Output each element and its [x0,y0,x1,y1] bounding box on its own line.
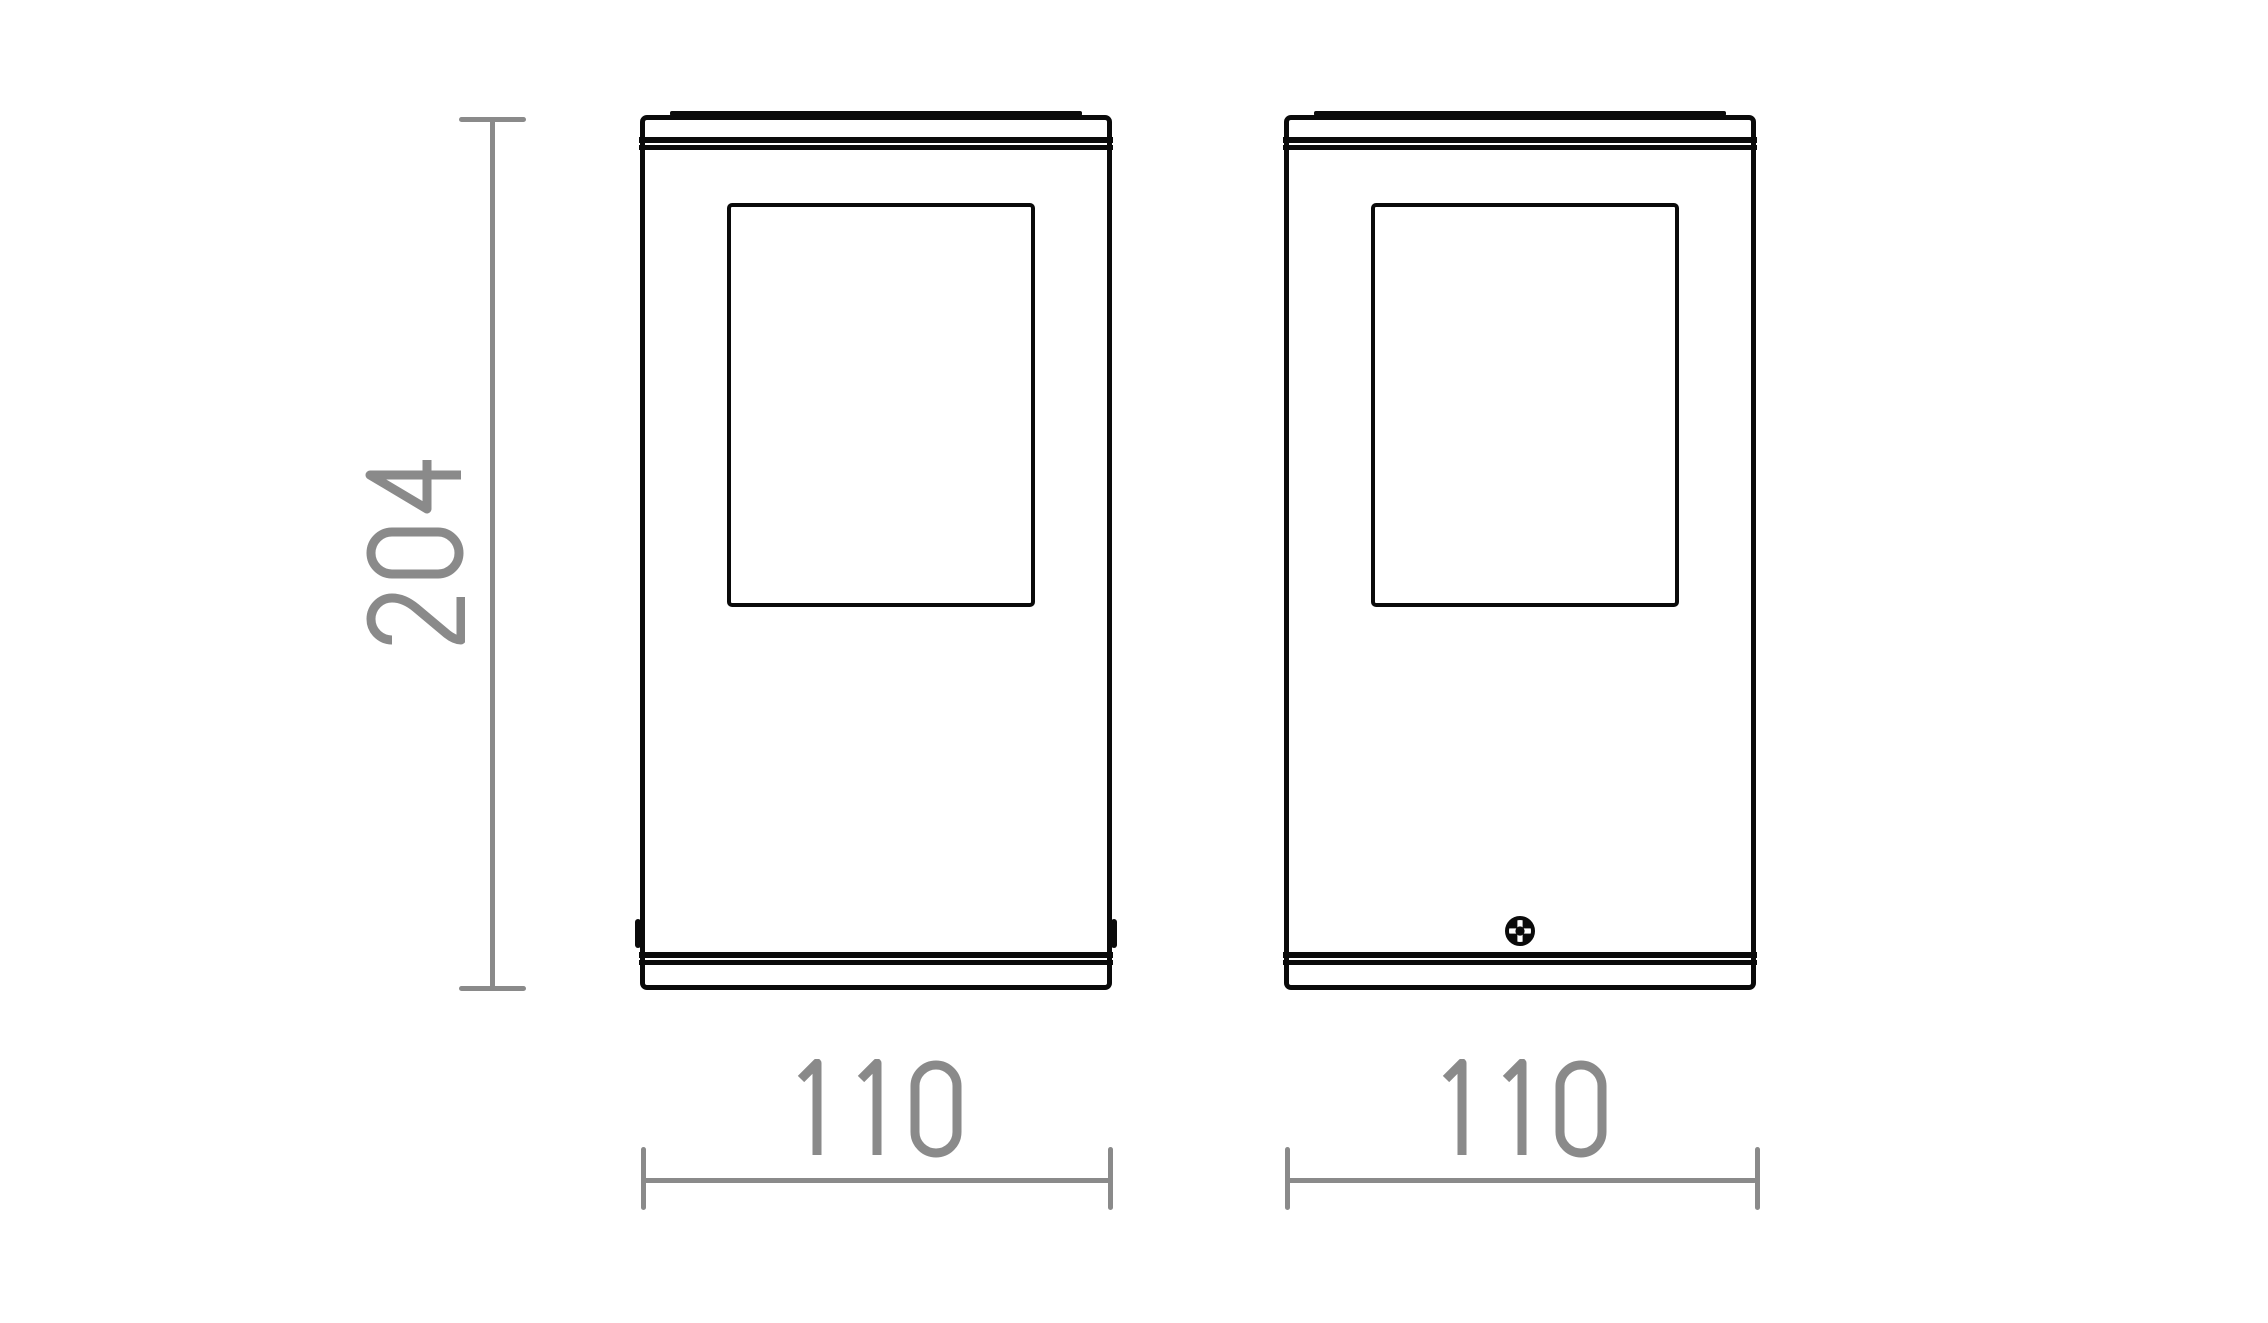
left-view-top-seam-line-2 [639,145,1113,150]
right-view-bottom-seam-line-2 [1283,960,1757,965]
left-view-bottom-left-tab [635,919,641,948]
width-dimension-label-left [786,1059,966,1159]
width-dimension-right-tick-right [1755,1147,1760,1210]
left-view-bottom-seam-line-1 [639,952,1113,958]
left-view-bottom-right-tab [1111,919,1117,948]
height-dimension-line [490,118,495,989]
right-view-top-cap-strip [1314,111,1726,116]
left-view-top-seam-line-1 [639,137,1113,143]
right-view-window-opening [1371,203,1679,607]
width-dimension-right-tick-left [1285,1147,1290,1210]
height-dimension-label [365,454,465,652]
width-dimension-left-tick-left [641,1147,646,1210]
height-dimension-top-cap [459,117,526,122]
screw-icon [1505,916,1535,946]
width-dimension-line-right [1287,1178,1757,1183]
left-view-bottom-seam-line-2 [639,960,1113,965]
width-dimension-line-left [643,1178,1112,1183]
technical-drawing-canvas [0,0,2268,1323]
right-view-bottom-seam-line-1 [1283,952,1757,958]
height-dimension-bottom-cap [459,986,526,991]
right-view-body [1284,115,1756,990]
width-dimension-left-tick-right [1108,1147,1113,1210]
width-dimension-label-right [1431,1059,1611,1159]
left-view-top-cap-strip [670,111,1082,116]
left-view-body [640,115,1112,990]
left-view-window-opening [727,203,1035,607]
right-view-top-seam-line-1 [1283,137,1757,143]
right-view-top-seam-line-2 [1283,145,1757,150]
